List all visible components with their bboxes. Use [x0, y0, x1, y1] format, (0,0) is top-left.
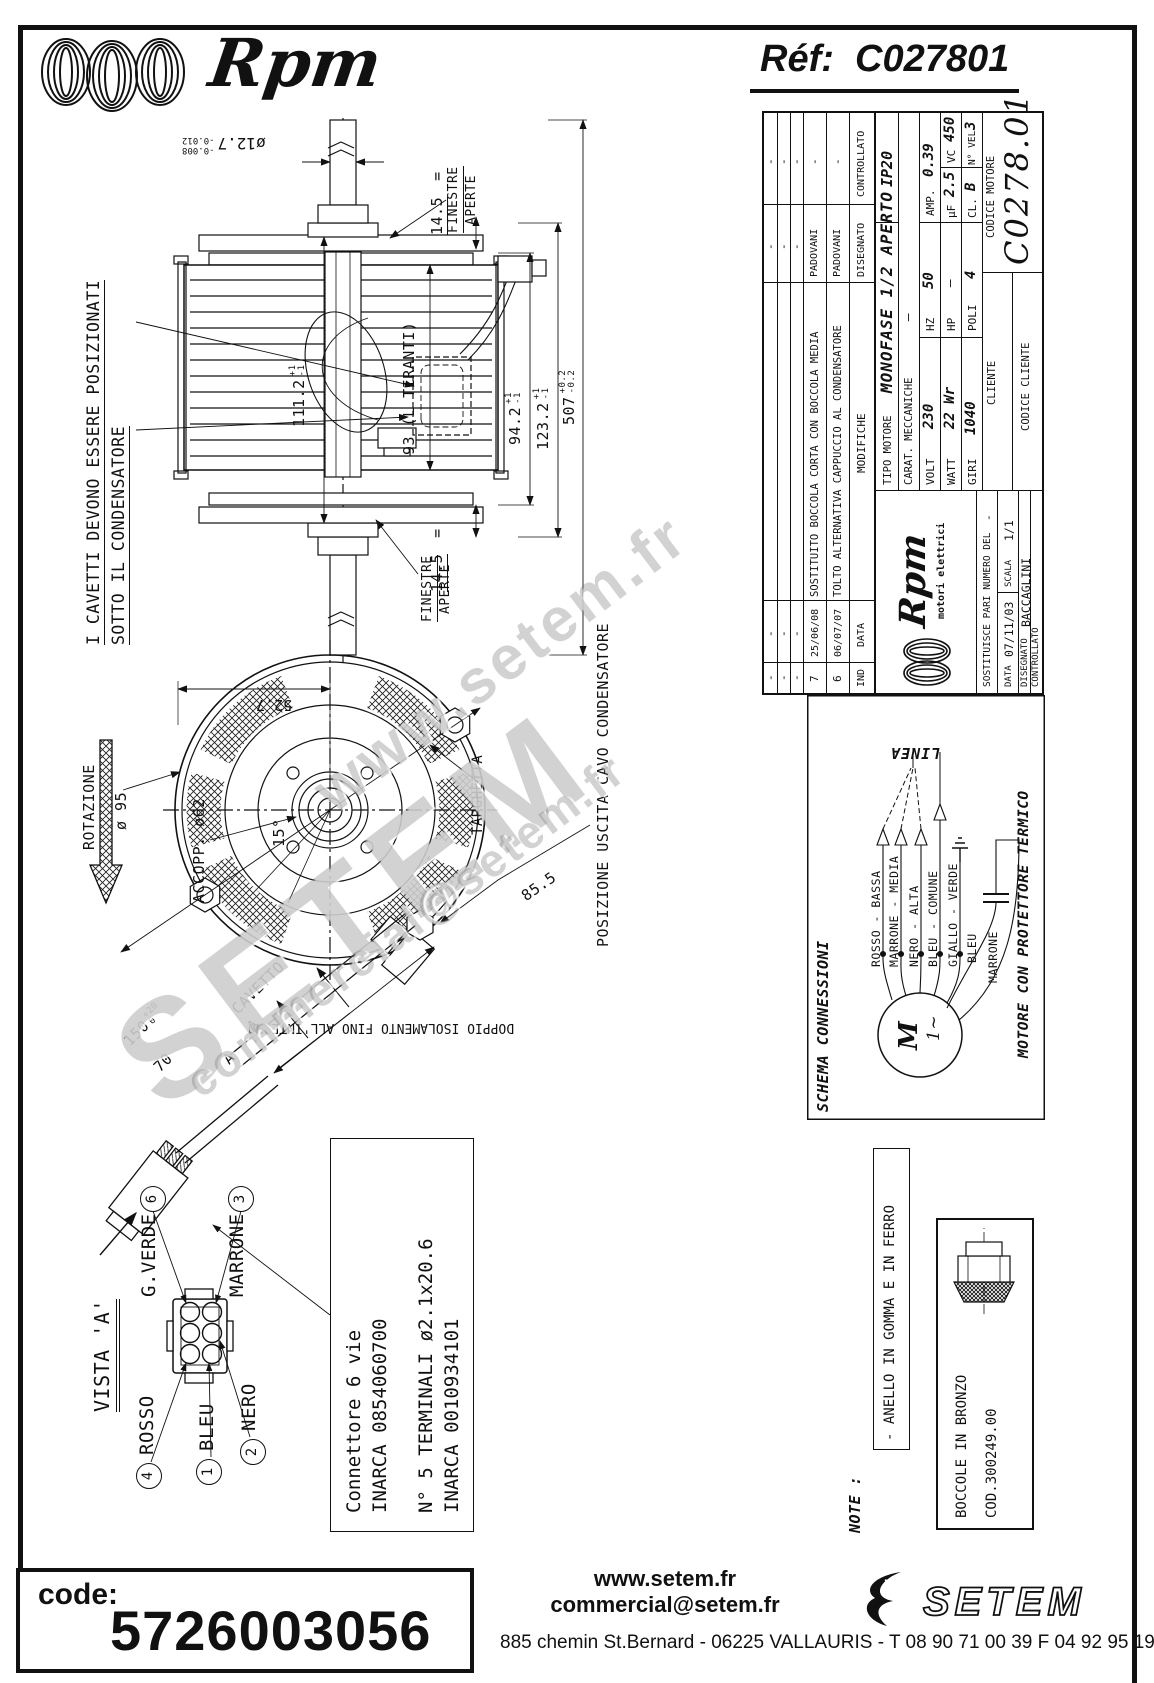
boccole-box: BOCCOLE IN BRONZO COD.300249.00 [936, 1218, 1034, 1530]
wire-giallo-verde: GIALLO - VERDE [946, 863, 960, 967]
dim-123-2: 123.2 +1-1 [534, 388, 553, 451]
ref-number: Réf: C027801 [750, 38, 1019, 93]
data-value: 07/11/03 [1002, 602, 1016, 657]
pin-rosso-label: ROSSO [136, 1395, 158, 1455]
rev-row-1-ind: - [777, 674, 790, 681]
rpm-logo-coils-icon [38, 32, 198, 112]
footer-site: www.setem.fr [505, 1566, 825, 1592]
rev-row-7-ind: 7 [808, 675, 821, 682]
vc-value: 450 [942, 117, 958, 142]
rpm-brand-text: Rpm [205, 24, 387, 102]
pin-nero-label: NERO [238, 1383, 260, 1431]
motor-symbol-m: M [894, 1021, 924, 1050]
rev-row-2-con: - [790, 158, 803, 165]
page-border-left [18, 25, 23, 1568]
finestre-right-line1: FINESTRE [446, 166, 464, 233]
vel-value: 3 [963, 122, 979, 130]
giri-value: 1040 [963, 401, 979, 435]
rev-header-con: CONTROLLATO [856, 131, 867, 197]
dim-507: 507 +0.2-0.2 [560, 370, 579, 425]
cap-wire-marrone: MARRONE [986, 931, 1000, 983]
dim-94-2: 94.2 +1-1 [506, 392, 525, 445]
inarca-box: Connettore 6 vie INARCA 0854060700 N° 5 … [330, 1138, 474, 1532]
pin-3-badge: 3 [228, 1186, 254, 1212]
dim-shaft-diameter: ø12.7 -0.008-0.012 [182, 134, 266, 153]
scala-label: SCALA [1004, 560, 1014, 587]
vel-label: N° VEL. [967, 125, 978, 165]
boccole-line2: COD.300249.00 [984, 1408, 1000, 1518]
rev-header-mod: MODIFICHE [855, 413, 868, 473]
codice-cliente-label: CODICE CLIENTE [1020, 342, 1032, 431]
finestre-aperte-right: FINESTRE APERTE [446, 166, 481, 233]
schema-title: SCHEMA CONNESSIONI [814, 940, 832, 1112]
cap-wire-bleu: BLEU [965, 933, 979, 963]
code-box: code: 5726003056 [16, 1568, 474, 1673]
titleblock-rpm-sub: motori elettrici [936, 523, 947, 619]
carat-label: CARAT. MECCANICHE [903, 378, 915, 485]
codice-motore-label: CODICE MOTORE [985, 156, 997, 238]
rev-row-7-des: PADOVANI [809, 229, 820, 277]
codice-motore-value: C0278.01 [998, 92, 1036, 265]
rev-row-2-date: - [790, 630, 803, 637]
dim-shaft-tol-minus: -0.012 [182, 135, 215, 144]
volt-value: 230 [921, 404, 937, 429]
targhetta-label: TARGHETTA [470, 755, 486, 835]
disegnato-label: DISEGNATO [1020, 638, 1030, 687]
rev-row-2-ind: - [790, 674, 803, 681]
pin-4-badge: 4 [136, 1463, 162, 1489]
dim-shaft-tol-plus: -0.008 [182, 145, 215, 154]
dim-507-tol-minus: -0.2 [568, 370, 577, 394]
dim-14-5-right-eq: = [428, 171, 446, 181]
volt-label: VOLT [924, 459, 937, 486]
motor-symbol-phase: 1~ [924, 1015, 944, 1041]
page-border-right [1132, 25, 1137, 1683]
dim-52-7: 52.7 [256, 696, 292, 714]
ref-label: Réf: [760, 38, 834, 80]
rev-row-1-con: - [777, 158, 790, 165]
pin-1-badge: 1 [196, 1459, 222, 1485]
hp-value: — [943, 279, 958, 287]
scanned-datasheet-page: { "header": { "brand": "Rpm", "ref_label… [0, 0, 1154, 1683]
giri-label: GIRI [966, 459, 979, 486]
finestre-aperte-left: FINESTRE APERTE [420, 555, 455, 622]
wire-bleu-comune: BLEU - COMUNE [926, 870, 940, 967]
amp-value: 0.39 [921, 143, 937, 177]
vc-label: VC [945, 150, 958, 163]
hz-label: HZ [924, 318, 937, 331]
wire-rosso-bassa: ROSSO - BASSA [869, 870, 883, 967]
header-bar: Rpm Réf: C027801 [30, 30, 1130, 110]
setem-logo: SETEM [855, 1570, 1130, 1630]
pin-6-badge: 6 [140, 1186, 166, 1212]
cl-value: B [963, 183, 979, 191]
tipo-motore-label: TIPO MOTORE [882, 415, 894, 485]
footer-email: commercial@setem.fr [505, 1592, 825, 1618]
rev-row-6-date: 06/07/07 [833, 609, 844, 657]
rev-row-7-con: - [808, 158, 821, 165]
data-label: DATA [1004, 665, 1014, 687]
rev-row-0-des: - [764, 243, 777, 250]
hp-label: HP [945, 318, 958, 331]
rev-row-6-ind: 6 [831, 675, 844, 682]
uf-value: 2.5 [942, 172, 958, 197]
watt-value: 22 Wr [942, 387, 958, 429]
wire-nero-alta: NERO - ALTA [907, 885, 921, 967]
dim-15-deg: 15° [270, 818, 288, 847]
ref-value: C027801 [855, 38, 1009, 80]
bushing-icon [942, 1226, 1027, 1316]
sostituisce-label: SOSTITUISCE PARI NUMERO DEL [982, 533, 993, 687]
hz-value: 50 [921, 272, 937, 289]
inarca-line2: INARCA 0854060700 [369, 1319, 391, 1513]
scala-value: 1/1 [1002, 520, 1016, 541]
uf-label: μF [945, 205, 958, 218]
poli-value: 4 [963, 271, 979, 279]
inarca-line4: INARCA 0010934101 [441, 1319, 463, 1513]
dim-14-5-right-value: 14.5 [428, 197, 448, 235]
rev-row-6-con: - [831, 158, 844, 165]
pin-gverde-label: G.VERDE [138, 1213, 160, 1297]
inarca-line1: Connettore 6 vie [343, 1330, 365, 1513]
dim-94-2-value: 94.2 [506, 407, 524, 445]
amp-label: AMP. [924, 190, 937, 217]
boccole-line1: BOCCOLE IN BRONZO [954, 1375, 970, 1518]
cliente-label: CLIENTE [986, 361, 998, 405]
finestre-left-line2: APERTE [438, 555, 454, 622]
code-value: 5726003056 [110, 1598, 431, 1663]
watt-label: WATT [945, 459, 958, 486]
technical-drawing: I CAVETTI DEVONO ESSERE POSIZIONATI SOTT… [78, 110, 1045, 1555]
title-block: - - - - - - - - - - - - 7 25/06/08 SOSTI… [762, 111, 1044, 695]
dim-94-2-tol-minus: -1 [514, 392, 523, 404]
titleblock-rpm-text: Rpm [892, 531, 934, 630]
dim-dia-95: ø 95 [112, 792, 130, 830]
dim-14-5-right: 14.5= [428, 171, 446, 235]
dim-111-2-value: 111.2 [290, 379, 308, 427]
rev-row-2-des: - [790, 243, 803, 250]
rev-row-1-des: - [777, 243, 790, 250]
rev-row-0-date: - [764, 630, 777, 637]
note-cavetti-line2: SOTTO IL CONDENSATORE [109, 426, 130, 645]
linea-label: LINEA [890, 744, 940, 762]
dim-111-2-tol-minus: -1 [298, 365, 307, 377]
rev-row-6-des: PADOVANI [832, 229, 843, 277]
rev-header-date: DATA [856, 623, 867, 647]
rpm-logo-small-coil-icon [900, 631, 954, 689]
vista-a-title: VISTA 'A' [90, 1299, 120, 1412]
motor-side-view-drawing [78, 110, 590, 670]
doppio-isolamento-note: DOPPIO ISOLAMENTO FINO ALL'INTERNO [248, 1020, 514, 1035]
finestre-right-line2: APERTE [464, 166, 480, 233]
posizione-uscita-cavo-label: POSIZIONE USCITA CAVO CONDENSATORE [594, 623, 612, 947]
note-cavetti-line1: I CAVETTI DEVONO ESSERE POSIZIONATI [84, 280, 105, 645]
rev-row-0-con: - [764, 158, 777, 165]
anello-note-text: - ANELLO IN GOMMA E IN FERRO [882, 1205, 898, 1441]
protettore-termico-note: MOTORE CON PROTETTORE TERMICO [1016, 790, 1032, 1058]
dim-123-2-tol-minus: -1 [542, 388, 551, 400]
rev-row-7-mod: SOSTITUITO BOCCOLA CORTA CON BOCCOLA MED… [809, 331, 821, 597]
pin-marrone-label: MARRONE [226, 1213, 248, 1297]
rev-row-7-date: 25/06/08 [810, 609, 821, 657]
rev-header-des: DISEGNATO [856, 223, 867, 277]
pin-bleu-label: BLEU [196, 1403, 218, 1451]
dim-shaft-value: ø12.7 [218, 134, 266, 153]
setem-swoosh-icon [867, 1572, 901, 1626]
rotazione-label: ROTAZIONE [80, 764, 98, 850]
sostituisce-value: - [982, 514, 995, 521]
controllato-label: CONTROLLATO [1031, 627, 1041, 687]
tipo-motore-value: MONOFASE 1/2 APERTO [877, 191, 896, 393]
anello-note-box: - ANELLO IN GOMMA E IN FERRO [873, 1148, 910, 1450]
carat-value: — [901, 313, 916, 321]
poli-label: POLI [966, 305, 979, 332]
finestre-left-line1: FINESTRE [420, 555, 438, 622]
dim-111-2: 111.2 +1-1 [290, 365, 309, 428]
wire-marrone-media: MARRONE - MEDIA [887, 856, 901, 967]
ip-rating: IP20 [878, 151, 896, 187]
rev-row-6-mod: TOLTO ALTERNATIVA CAPPUCCIO AL CONDENSAT… [832, 325, 844, 597]
rev-row-0-ind: - [764, 674, 777, 681]
cl-label: CL. [966, 198, 979, 218]
footer-address: 885 chemin St.Bernard - 06225 VALLAURIS … [500, 1632, 1154, 1654]
dim-14-5-left-eq: = [428, 528, 446, 538]
dim-123-2-value: 123.2 [534, 402, 552, 450]
rev-row-1-date: - [777, 630, 790, 637]
dim-accopp-62: ACCOPP. ø62 [190, 798, 208, 903]
dim-93-tiranti: 93 (L TIRANTI) [400, 322, 418, 455]
note-label: NOTE : [846, 1476, 864, 1533]
inarca-line3: N° 5 TERMINALI ø2.1x20.6 [415, 1238, 437, 1513]
pin-2-badge: 2 [240, 1439, 266, 1465]
code-label: code: [38, 1578, 118, 1612]
setem-brand-text: SETEM [923, 1580, 1086, 1624]
disegnato-value: BACCAGLINI [1019, 558, 1033, 627]
dim-507-value: 507 [560, 396, 578, 425]
rev-header-ind: IND [856, 669, 867, 687]
